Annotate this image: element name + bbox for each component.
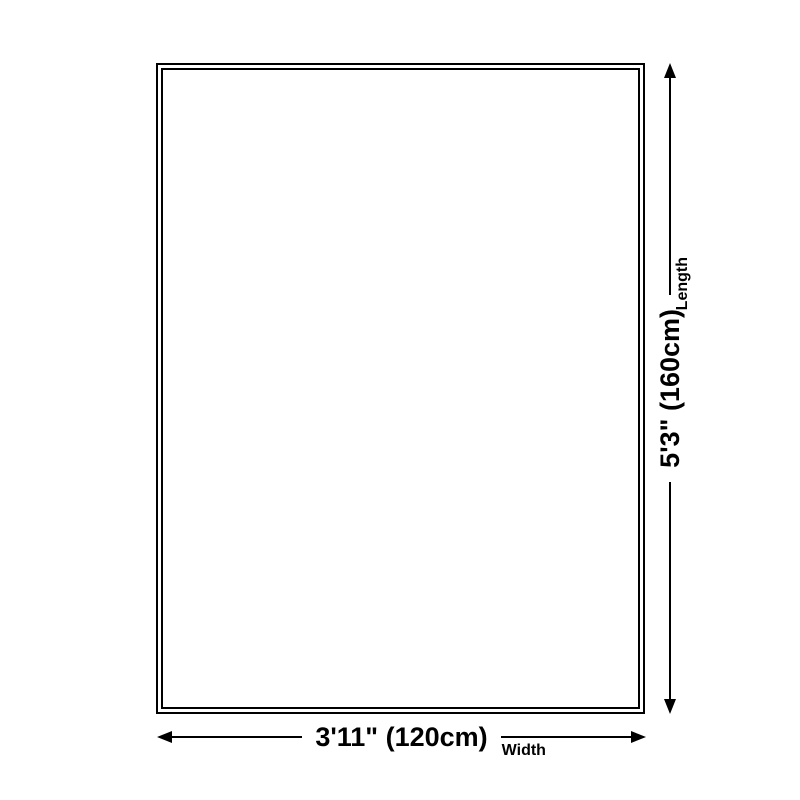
length-dimension-line-lower xyxy=(669,482,671,699)
width-dimension-line xyxy=(501,736,631,738)
rug-outline xyxy=(156,63,645,714)
width-dimension-line-left xyxy=(172,736,302,738)
width-dimension-line-right: Width xyxy=(501,722,631,752)
width-label: Width xyxy=(502,743,546,759)
arrow-left-icon xyxy=(157,731,172,743)
length-dimension: Length 5'3" (160cm) xyxy=(655,63,685,714)
arrow-right-icon xyxy=(631,731,646,743)
rug-outline-inner-border xyxy=(161,68,640,709)
arrow-up-icon xyxy=(664,63,676,78)
length-dimension-line xyxy=(669,78,671,295)
length-value: 5'3" (160cm) xyxy=(657,309,684,468)
length-dimension-line-upper: Length xyxy=(655,78,685,295)
length-label: Length xyxy=(675,257,691,310)
width-dimension: 3'11" (120cm) Width xyxy=(157,722,646,752)
arrow-down-icon xyxy=(664,699,676,714)
rug-size-diagram: Length 5'3" (160cm) 3'11" (120cm) Width xyxy=(0,0,800,800)
width-value: 3'11" (120cm) xyxy=(315,724,487,751)
